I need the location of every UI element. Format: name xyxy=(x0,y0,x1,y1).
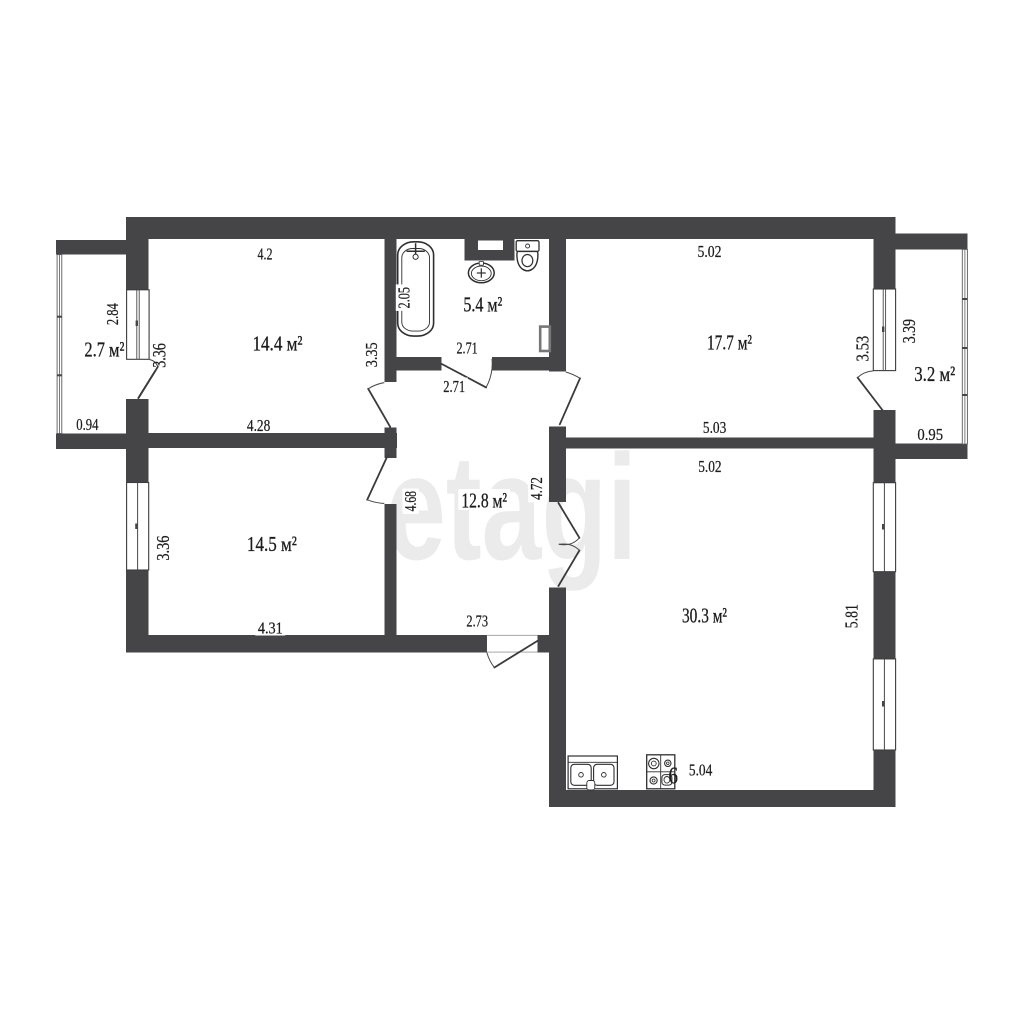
svg-text:2.05: 2.05 xyxy=(396,287,414,309)
svg-text:5.81: 5.81 xyxy=(843,604,862,628)
svg-text:14.5 м²: 14.5 м² xyxy=(247,534,297,557)
svg-text:3.53: 3.53 xyxy=(852,336,873,362)
svg-text:3.35: 3.35 xyxy=(363,342,381,367)
svg-text:17.7 м²: 17.7 м² xyxy=(707,331,752,354)
svg-text:4.28: 4.28 xyxy=(247,416,271,435)
svg-text:3.36: 3.36 xyxy=(148,343,170,368)
svg-text:0.94: 0.94 xyxy=(76,416,99,434)
svg-text:3.39: 3.39 xyxy=(900,319,919,343)
svg-text:5.02: 5.02 xyxy=(698,243,722,262)
svg-text:5.02: 5.02 xyxy=(698,457,721,476)
svg-text:3.36: 3.36 xyxy=(154,536,174,561)
svg-text:4.68: 4.68 xyxy=(402,491,421,511)
svg-text:5.04: 5.04 xyxy=(689,761,713,780)
svg-text:4.72: 4.72 xyxy=(528,477,546,500)
svg-text:5.03: 5.03 xyxy=(703,419,727,438)
svg-text:2.84: 2.84 xyxy=(104,303,122,325)
svg-text:0.95: 0.95 xyxy=(917,426,943,444)
svg-text:5.4 м²: 5.4 м² xyxy=(463,293,502,317)
svg-text:4.2: 4.2 xyxy=(257,246,272,264)
svg-text:4.31: 4.31 xyxy=(258,619,283,637)
svg-text:6: 6 xyxy=(668,762,678,789)
svg-text:2.71: 2.71 xyxy=(456,340,477,358)
svg-text:2.73: 2.73 xyxy=(466,613,488,631)
svg-text:2.7 м²: 2.7 м² xyxy=(84,339,124,362)
svg-text:3.2 м²: 3.2 м² xyxy=(914,363,955,386)
svg-text:2.71: 2.71 xyxy=(443,378,465,396)
svg-text:14.4 м²: 14.4 м² xyxy=(253,333,303,356)
svg-text:12.8 м²: 12.8 м² xyxy=(461,489,507,512)
svg-text:30.3 м²: 30.3 м² xyxy=(682,604,727,627)
